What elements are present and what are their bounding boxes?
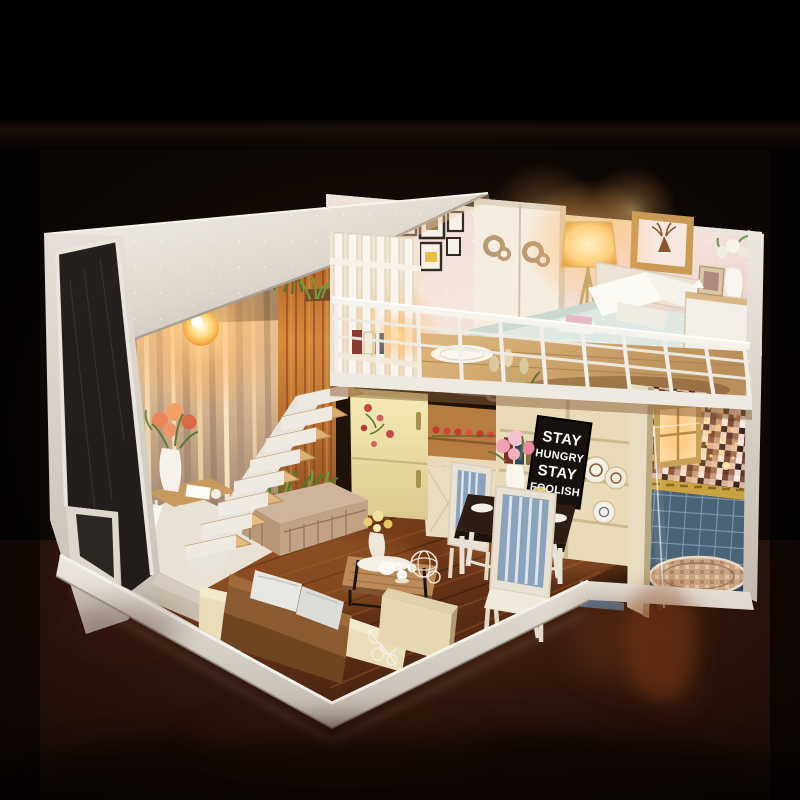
- fridge-handle: [416, 470, 421, 488]
- dollhouse-photo: STAY HUNGRY STAY FOOLISH: [0, 0, 800, 800]
- teacup: [211, 489, 221, 499]
- reflection-left: [60, 604, 180, 656]
- lamp-shade: [561, 222, 617, 267]
- book: [364, 332, 373, 354]
- picture-frame: [447, 238, 460, 255]
- fridge-handle: [416, 412, 421, 430]
- photo-stage: STAY HUNGRY STAY FOOLISH: [0, 0, 800, 800]
- plate: [471, 504, 493, 513]
- photo-frame: [698, 266, 724, 296]
- book: [352, 330, 362, 354]
